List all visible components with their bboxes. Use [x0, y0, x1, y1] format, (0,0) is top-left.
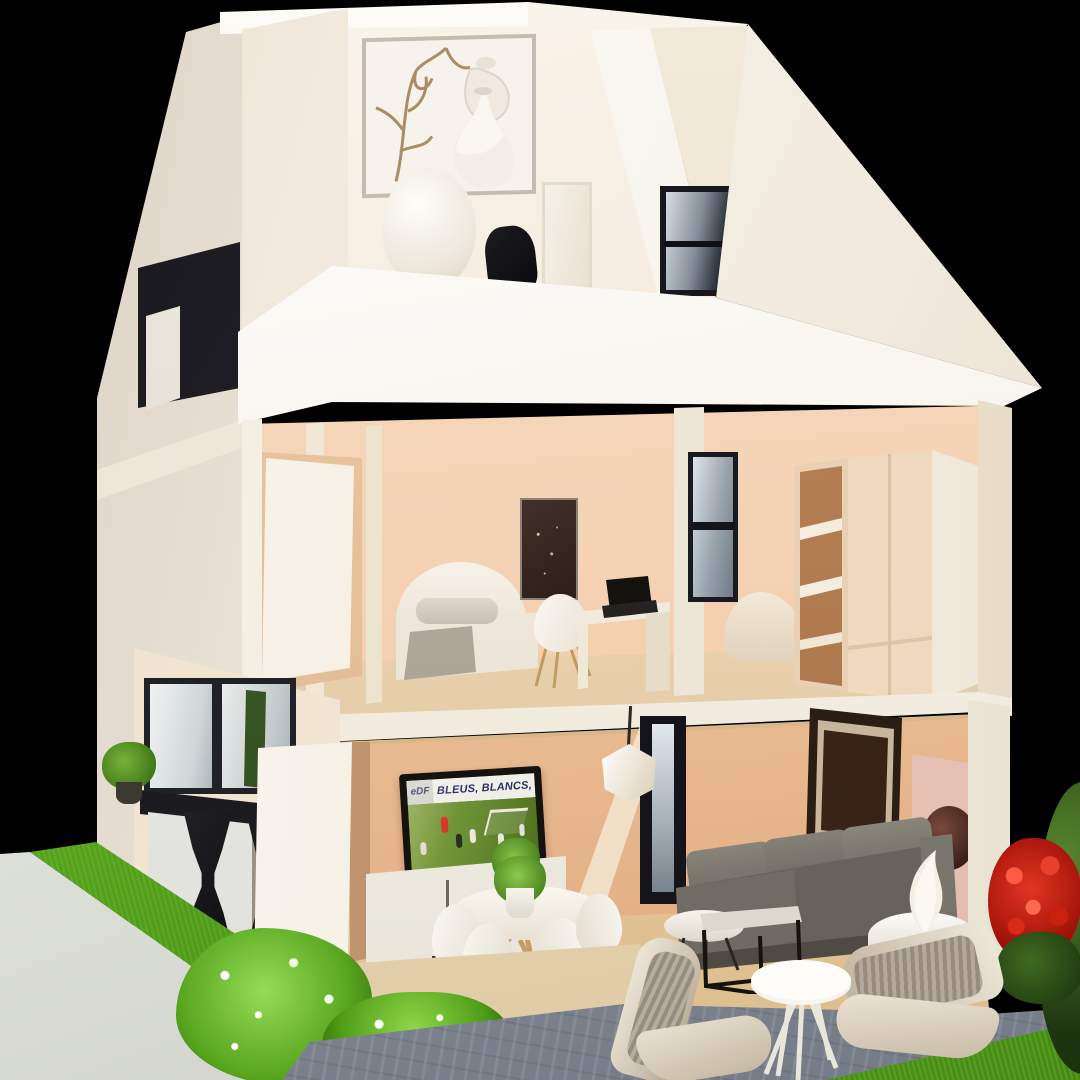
outdoor-round-table — [746, 956, 856, 1080]
tall-window — [640, 716, 686, 904]
model-photo-stage: eDF BLEUS, BLANCS, — [0, 0, 1080, 1080]
kitchen-window-pane-left — [150, 684, 212, 788]
kitchen-plant-pot — [116, 782, 142, 804]
dining-plant-pot — [506, 888, 534, 918]
tall-window-pane — [652, 724, 674, 892]
bed-pillow — [416, 598, 498, 624]
middle-window — [688, 452, 738, 602]
sculpture — [896, 848, 948, 936]
attic-door-frame — [542, 182, 592, 292]
middle-window-bar — [691, 522, 735, 530]
red-shrub-foliage-base — [996, 932, 1080, 1004]
bedroom-artwork — [520, 498, 578, 600]
